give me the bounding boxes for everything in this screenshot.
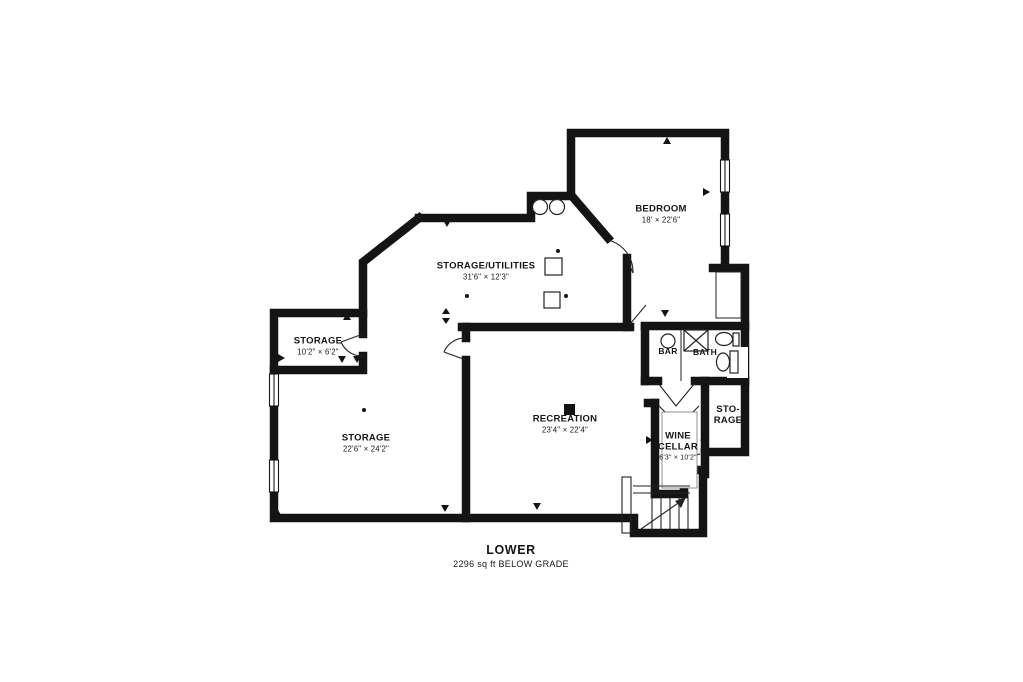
- fixtures-layer: [533, 200, 749, 489]
- room-label-bedroom: BEDROOM 18' × 22'6": [635, 205, 686, 226]
- room-dims: 31'6" × 12'3": [437, 273, 536, 282]
- plan-title: LOWER: [453, 543, 569, 557]
- room-label-recreation: RECREATION 23'4" × 22'4": [533, 415, 598, 436]
- room-label-bath: BATH: [693, 348, 717, 358]
- room-dims: 6'3" × 10'2": [655, 454, 701, 462]
- room-name: STO-RAGE: [708, 405, 748, 427]
- window-icon: [721, 214, 730, 246]
- plan-footer: LOWER 2296 sq ft BELOW GRADE: [453, 543, 569, 569]
- laundry-tubs-icon: [533, 200, 565, 215]
- room-name: BAR: [658, 347, 677, 357]
- room-dims: 22'6" × 24'2": [342, 445, 391, 454]
- room-label-wine-cellar: WINE CELLAR 6'3" × 10'2": [655, 432, 701, 463]
- floor-plan-drawing: [0, 0, 1023, 682]
- room-label-storage-small: STORAGE 10'2" × 6'2": [294, 337, 343, 358]
- room-label-bar: BAR: [658, 347, 677, 357]
- toilet-icon: [717, 347, 749, 378]
- room-name: STORAGE/UTILITIES: [437, 262, 536, 273]
- window-icon: [721, 160, 730, 192]
- room-name: WINE CELLAR: [655, 432, 701, 454]
- room-label-storage-utilities: STORAGE/UTILITIES 31'6" × 12'3": [437, 262, 536, 283]
- floor-plan: BEDROOM 18' × 22'6" STORAGE/UTILITIES 31…: [0, 0, 1023, 682]
- room-name: BEDROOM: [635, 205, 686, 216]
- room-dims: 18' × 22'6": [635, 216, 686, 225]
- room-dims: 10'2" × 6'2": [294, 348, 343, 357]
- room-dims: 23'4" × 22'4": [533, 426, 598, 435]
- bath-sink-icon: [716, 333, 740, 347]
- water-heater-icon: [544, 292, 560, 308]
- furnace-icon: [545, 258, 562, 275]
- room-name: BATH: [693, 348, 717, 358]
- window-icon: [270, 374, 279, 406]
- room-label-storage-side: STO-RAGE: [708, 405, 748, 427]
- room-name: STORAGE: [342, 434, 391, 445]
- plan-subtitle: 2296 sq ft BELOW GRADE: [453, 559, 569, 569]
- room-label-storage-large: STORAGE 22'6" × 24'2": [342, 434, 391, 455]
- window-icon: [270, 460, 279, 492]
- room-name: STORAGE: [294, 337, 343, 348]
- room-name: RECREATION: [533, 415, 598, 426]
